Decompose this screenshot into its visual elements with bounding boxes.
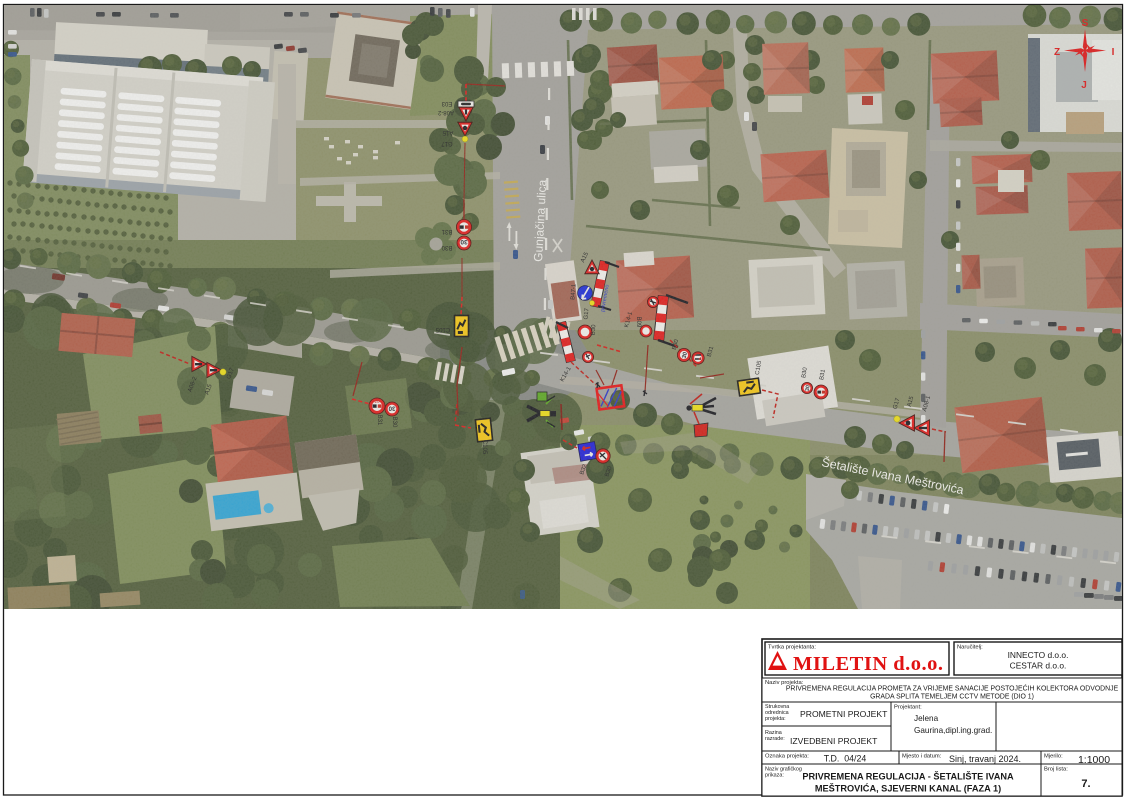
svg-text:Broj lista:: Broj lista:: [1044, 767, 1068, 773]
svg-text:IZVEDBENI PROJEKT: IZVEDBENI PROJEKT: [790, 736, 878, 746]
svg-text:razrade:: razrade:: [765, 736, 785, 742]
svg-text:Naručitelj:: Naručitelj:: [957, 645, 983, 651]
svg-text:PRIVREMENA REGULACIJA - ŠETALI: PRIVREMENA REGULACIJA - ŠETALIŠTE IVANA: [802, 771, 1014, 782]
svg-text:MILETIN d.o.o.: MILETIN d.o.o.: [793, 653, 944, 675]
svg-text:PROMETNI PROJEKT: PROMETNI PROJEKT: [800, 709, 888, 719]
svg-text:MEŠTROVIĆA, SJEVERNI KANAL (FA: MEŠTROVIĆA, SJEVERNI KANAL (FAZA 1): [815, 783, 1001, 794]
svg-text:PRIVREMENA REGULACIJA PROMETA: PRIVREMENA REGULACIJA PROMETA ZA VRIJEME…: [786, 684, 1119, 693]
svg-text:Mjerilo:: Mjerilo:: [1044, 754, 1063, 760]
svg-text:Jelena: Jelena: [914, 714, 939, 723]
svg-text:Tvrtka projektanta:: Tvrtka projektanta:: [768, 645, 816, 651]
svg-text:T.D. 04/24: T.D. 04/24: [824, 754, 867, 764]
svg-text:Gaurina,dipl.ing.grad.: Gaurina,dipl.ing.grad.: [914, 726, 992, 735]
svg-text:prikaza:: prikaza:: [765, 773, 784, 779]
svg-text:Sinj, travanj 2024.: Sinj, travanj 2024.: [949, 754, 1021, 764]
svg-text:Projektant:: Projektant:: [894, 705, 922, 711]
svg-text:INNECTO d.o.o.: INNECTO d.o.o.: [1008, 650, 1069, 660]
svg-text:Mjesto i datum:: Mjesto i datum:: [902, 754, 942, 760]
svg-text:GRADA SPLITA TEMELJEM CCTV MET: GRADA SPLITA TEMELJEM CCTV METODE (DIO 1…: [870, 694, 1034, 701]
svg-text:projekta:: projekta:: [765, 716, 786, 722]
svg-text:7.: 7.: [1081, 778, 1090, 790]
svg-text:Oznaka projekta:: Oznaka projekta:: [765, 754, 809, 760]
svg-text:CESTAR d.o.o.: CESTAR d.o.o.: [1010, 661, 1067, 671]
